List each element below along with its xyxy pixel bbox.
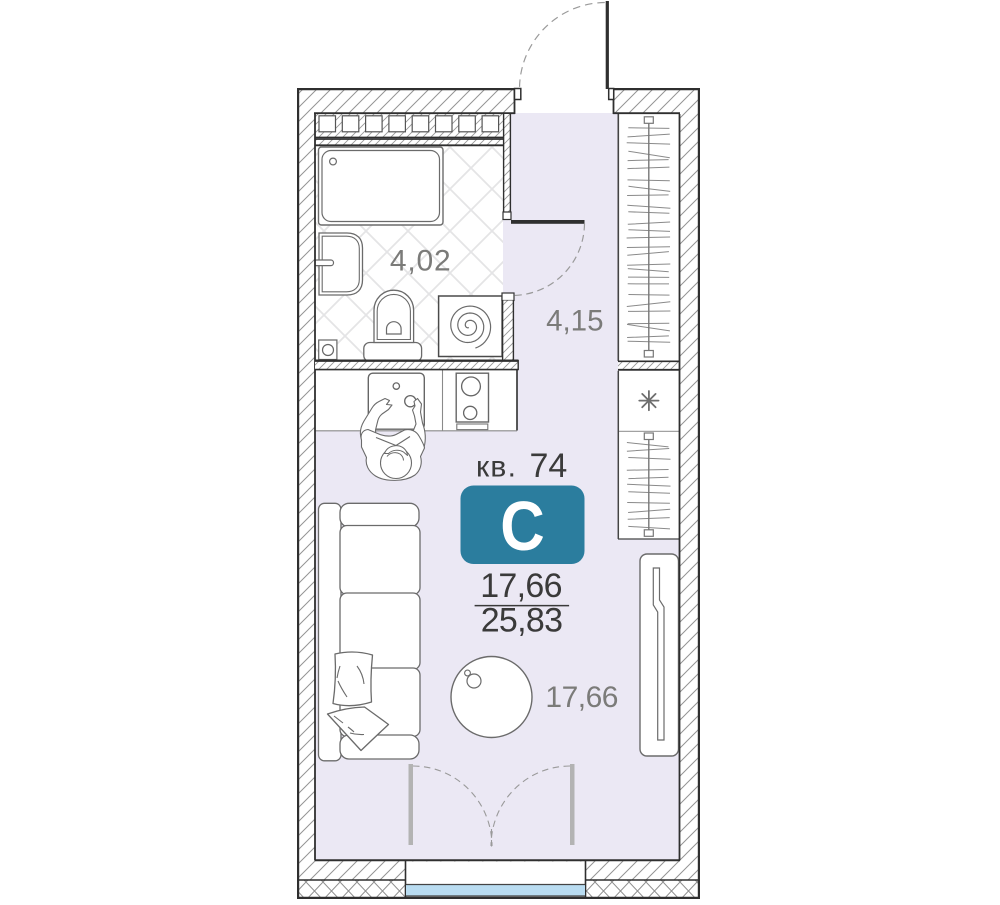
svg-text:17,66: 17,66 — [480, 567, 562, 605]
svg-text:кв.: кв. — [476, 451, 517, 484]
svg-text:С: С — [500, 486, 544, 565]
svg-text:17,66: 17,66 — [545, 681, 618, 714]
svg-text:4,15: 4,15 — [546, 305, 603, 338]
svg-text:25,83: 25,83 — [481, 602, 563, 640]
svg-text:74: 74 — [530, 447, 568, 485]
svg-text:4,02: 4,02 — [390, 244, 452, 277]
